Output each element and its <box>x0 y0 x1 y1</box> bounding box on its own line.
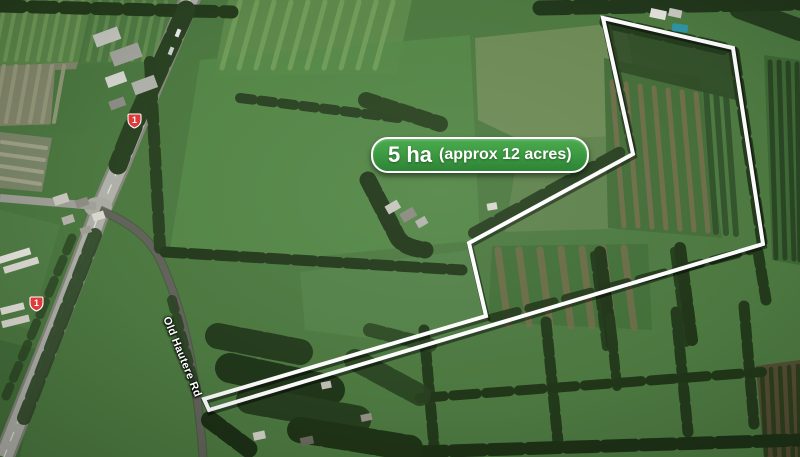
route-number: 1 <box>29 298 44 309</box>
aerial-property-map: 5 ha (approx 12 acres) Old Hautere Rd 1 … <box>0 0 800 457</box>
satellite-basemap <box>0 0 800 457</box>
area-qualifier: (approx 12 acres) <box>439 146 572 164</box>
route-number: 1 <box>127 115 142 126</box>
highway-1-marker: 1 <box>29 296 44 313</box>
area-value: 5 ha <box>388 142 432 168</box>
area-label: 5 ha (approx 12 acres) <box>371 137 589 173</box>
highway-1-marker: 1 <box>127 113 142 130</box>
